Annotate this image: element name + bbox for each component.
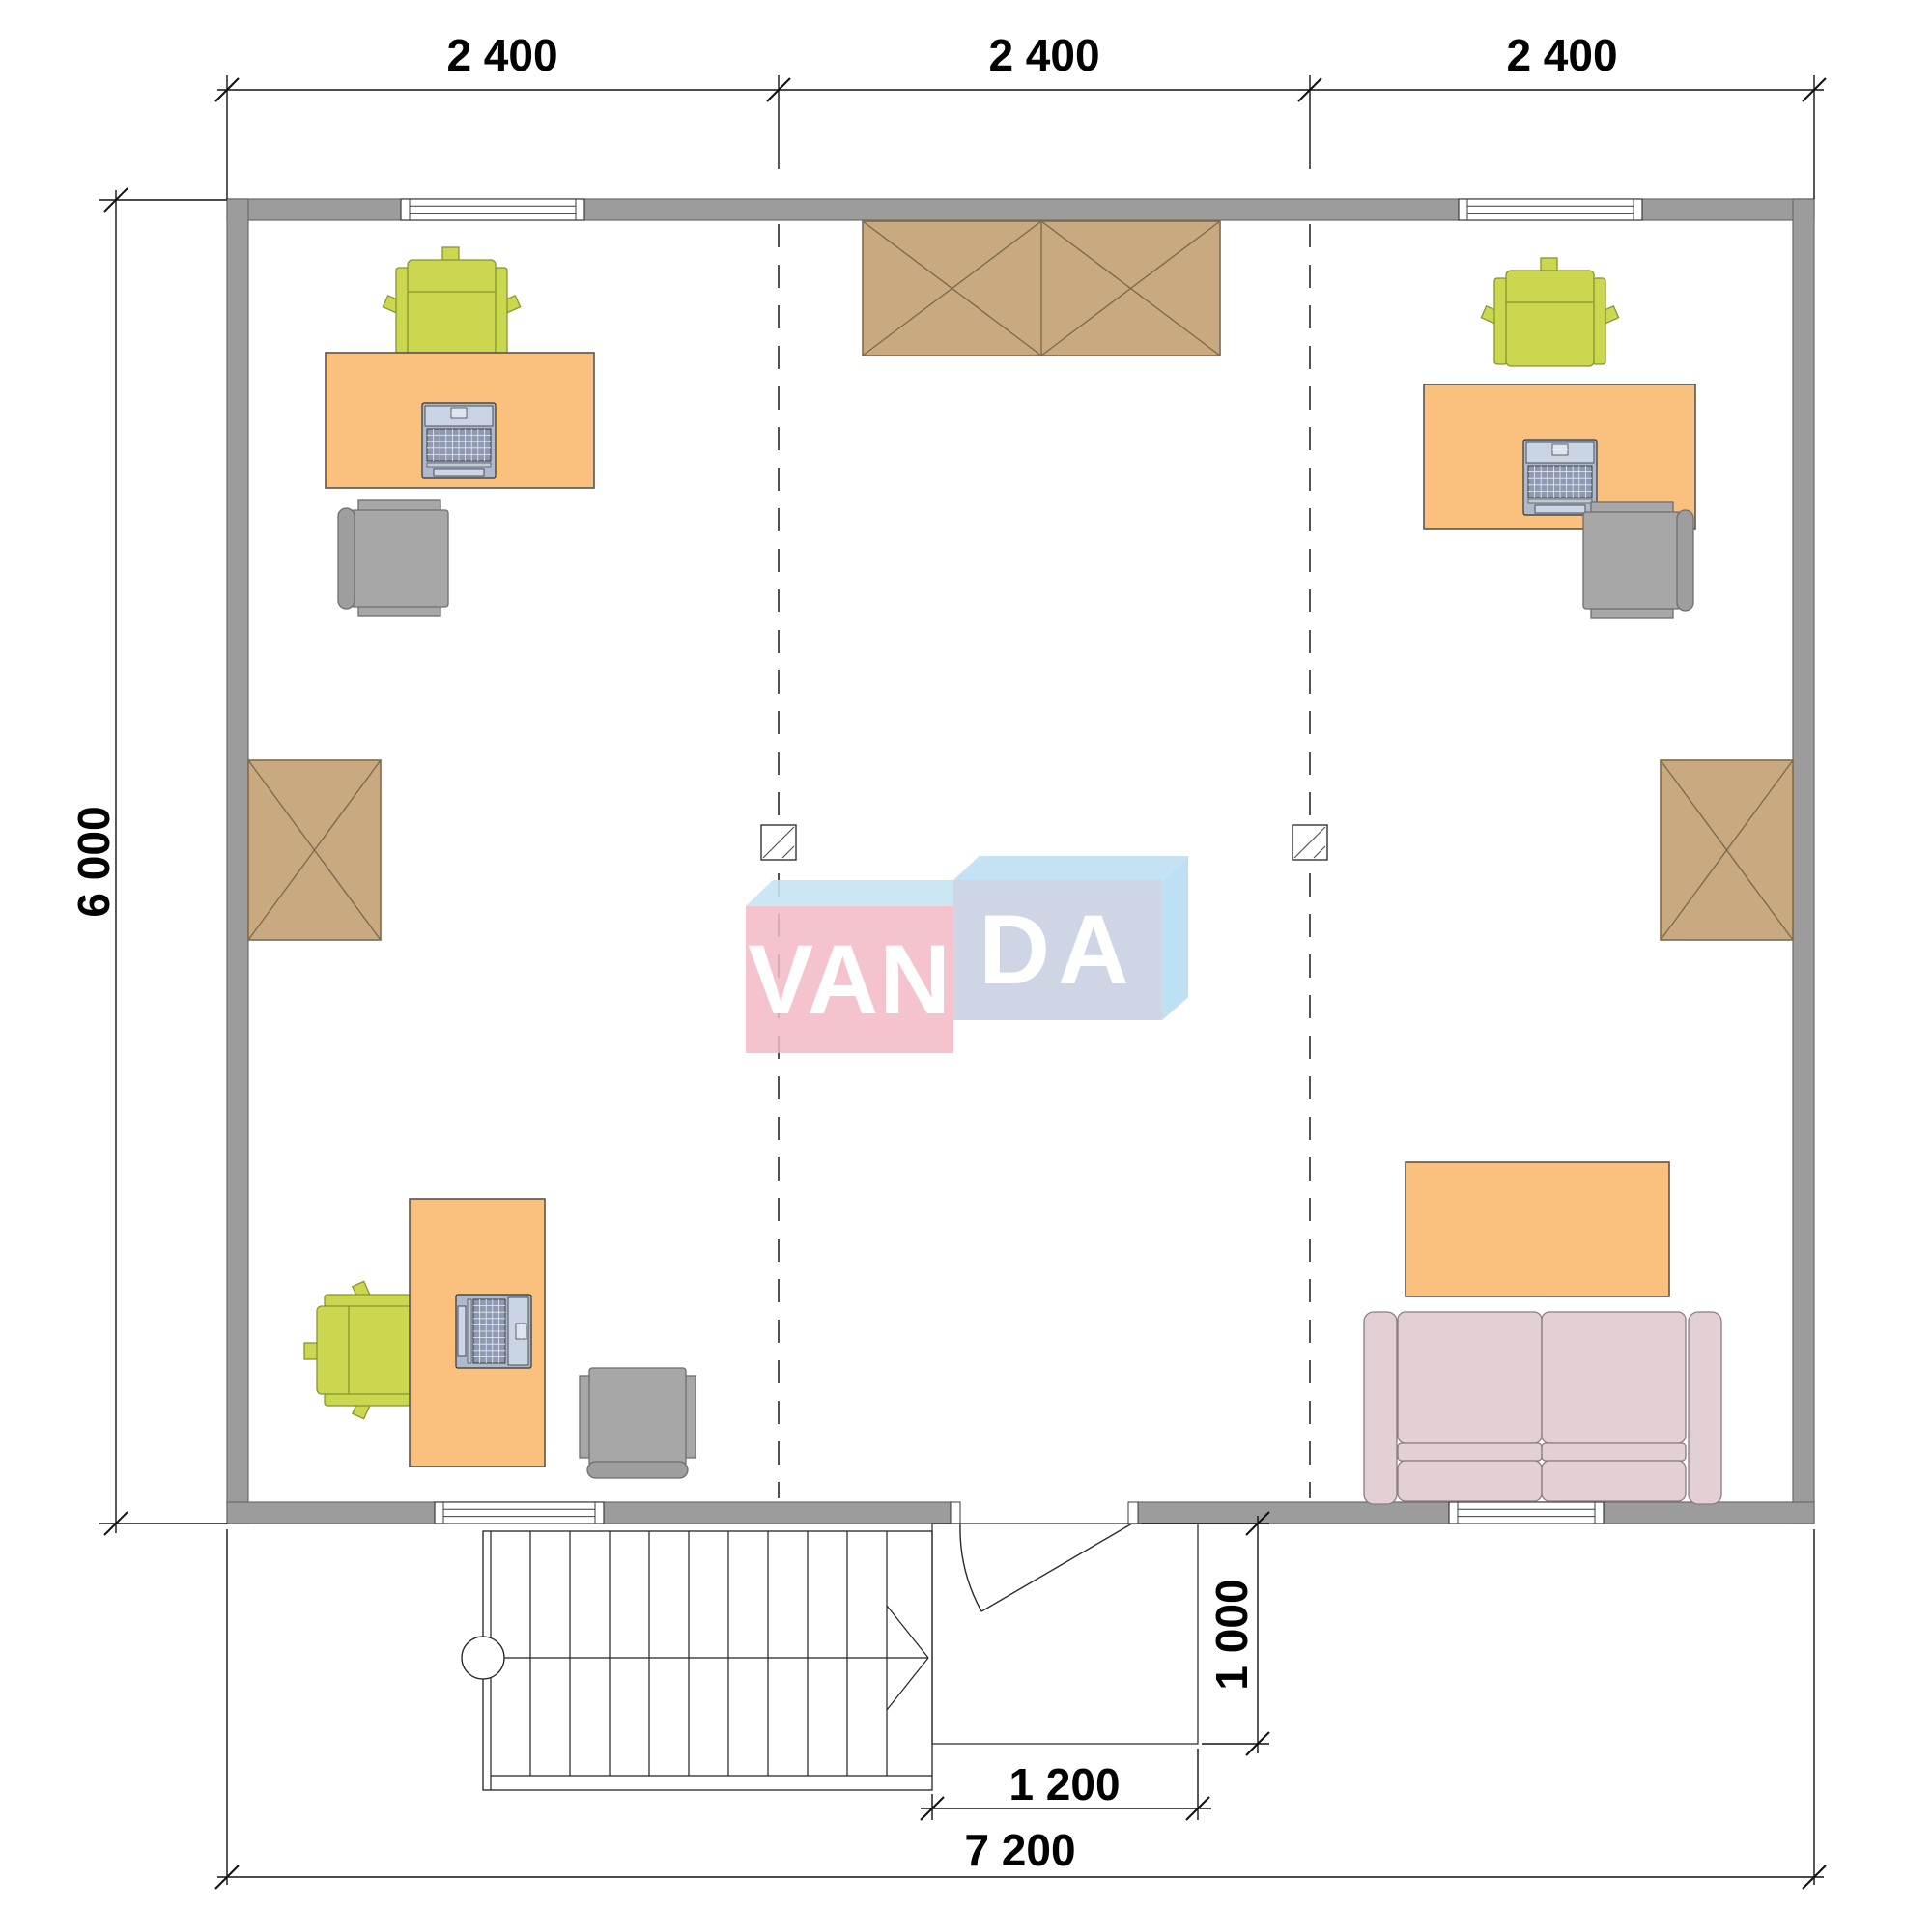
laptop-bottom-left [456, 1295, 531, 1368]
window-bottom-right [1449, 1502, 1604, 1524]
dim-label-top-bay3: 2 400 [1475, 30, 1649, 80]
dim-label-left-total: 6 000 [69, 775, 119, 949]
dim-top [215, 75, 1826, 199]
sofa [1364, 1312, 1721, 1504]
watermark-pink-top-face [746, 880, 953, 906]
laptop-top-right [1523, 440, 1597, 515]
column-marker-right [1293, 825, 1327, 860]
coffee-table [1406, 1162, 1669, 1296]
dim-label-top-bay2: 2 400 [957, 30, 1131, 80]
office-chair-bottom-left [580, 1368, 696, 1478]
office-chair-top-left [338, 500, 448, 616]
window-top-left [401, 199, 584, 220]
dim-label-top-bay1: 2 400 [415, 30, 589, 80]
wardrobe-left [248, 760, 381, 940]
wardrobe-right [1661, 760, 1793, 940]
window-top-right [1459, 199, 1642, 220]
watermark-blue-top-face [953, 856, 1188, 880]
watermark-blue-side-face [1162, 856, 1188, 1020]
floor-plan-canvas: VAN DA 2 400 2 400 2 400 6 000 1 000 1 2… [0, 0, 1932, 1908]
task-chair-bottom-left [304, 1281, 412, 1418]
staircase [462, 1531, 932, 1790]
task-chair-top-left [383, 247, 520, 356]
dim-label-entry-depth: 1 000 [1207, 1548, 1257, 1722]
watermark-text-da: DA [953, 880, 1162, 1020]
dim-label-entry-width: 1 200 [978, 1759, 1151, 1809]
wardrobe-top-center [863, 221, 1220, 356]
entry-landing [932, 1524, 1198, 1744]
office-chair-top-right [1583, 502, 1693, 618]
entry-door [960, 1524, 1132, 1611]
window-bottom-left [435, 1502, 604, 1524]
laptop-top-left [422, 403, 496, 478]
dim-label-bottom-total: 7 200 [933, 1825, 1107, 1875]
watermark-text-van: VAN [746, 906, 953, 1053]
vanda-watermark: VAN DA [744, 854, 1190, 1074]
task-chair-top-right [1481, 258, 1618, 366]
